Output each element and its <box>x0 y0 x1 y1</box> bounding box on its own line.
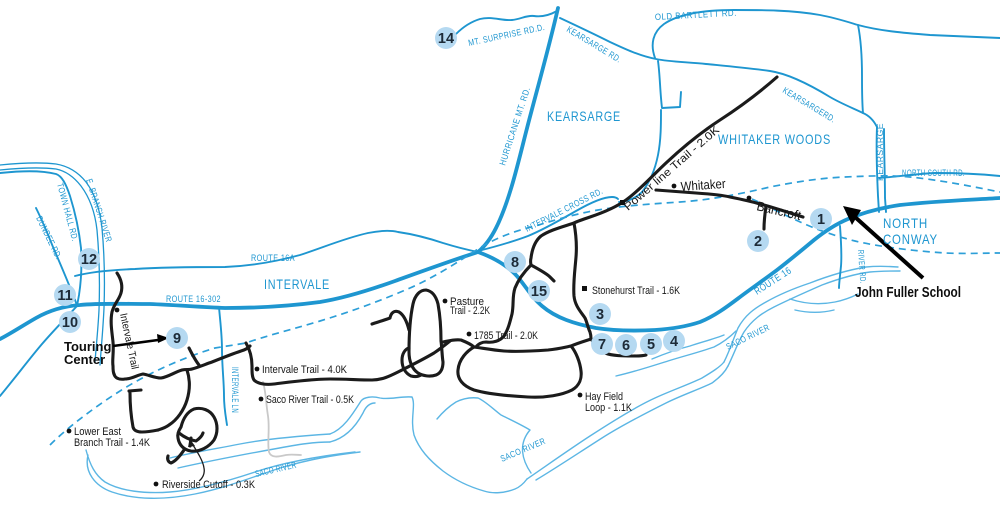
svg-text:NORTH SOUTH RD.: NORTH SOUTH RD. <box>902 168 965 178</box>
svg-text:Center: Center <box>64 352 105 367</box>
svg-text:ROUTE 16-302: ROUTE 16-302 <box>166 294 221 304</box>
svg-text:4: 4 <box>670 334 678 350</box>
svg-text:ROUTE 16A: ROUTE 16A <box>251 253 295 263</box>
svg-text:3: 3 <box>596 307 604 323</box>
svg-text:Stonehurst Trail - 1.6K: Stonehurst Trail - 1.6K <box>592 285 681 297</box>
svg-text:8: 8 <box>511 255 519 271</box>
svg-text:7: 7 <box>598 337 606 353</box>
svg-text:1: 1 <box>817 212 825 228</box>
svg-text:2: 2 <box>754 234 762 250</box>
svg-text:WHITAKER WOODS: WHITAKER WOODS <box>718 131 831 147</box>
svg-text:Loop - 1.1K: Loop - 1.1K <box>585 402 633 414</box>
svg-text:9: 9 <box>173 331 181 347</box>
svg-text:KEARSARGE: KEARSARGE <box>875 123 885 181</box>
svg-text:12: 12 <box>81 252 97 268</box>
svg-text:INTERVALE LN: INTERVALE LN <box>230 367 240 413</box>
svg-text:Whitaker: Whitaker <box>680 176 727 194</box>
svg-text:CONWAY: CONWAY <box>883 231 938 247</box>
svg-text:John Fuller School: John Fuller School <box>855 285 961 301</box>
svg-text:Trail - 2.2K: Trail - 2.2K <box>450 305 490 317</box>
svg-text:14: 14 <box>438 31 454 47</box>
svg-text:Branch Trail - 1.4K: Branch Trail - 1.4K <box>74 437 151 449</box>
svg-text:Intervale Trail - 4.0K: Intervale Trail - 4.0K <box>262 364 348 376</box>
svg-text:11: 11 <box>57 288 72 304</box>
svg-text:6: 6 <box>622 338 630 354</box>
svg-text:INTERVALE: INTERVALE <box>264 276 330 292</box>
svg-text:5: 5 <box>647 337 655 353</box>
svg-text:Riverside Cutoff - 0.3K: Riverside Cutoff - 0.3K <box>162 479 256 491</box>
svg-text:KEARSARGE: KEARSARGE <box>547 108 621 124</box>
svg-text:Saco River Trail - 0.5K: Saco River Trail - 0.5K <box>266 394 355 406</box>
svg-text:1785 Trail - 2.0K: 1785 Trail - 2.0K <box>474 330 539 342</box>
svg-text:15: 15 <box>531 284 547 300</box>
svg-text:NORTH: NORTH <box>883 215 928 231</box>
svg-text:10: 10 <box>62 315 78 331</box>
